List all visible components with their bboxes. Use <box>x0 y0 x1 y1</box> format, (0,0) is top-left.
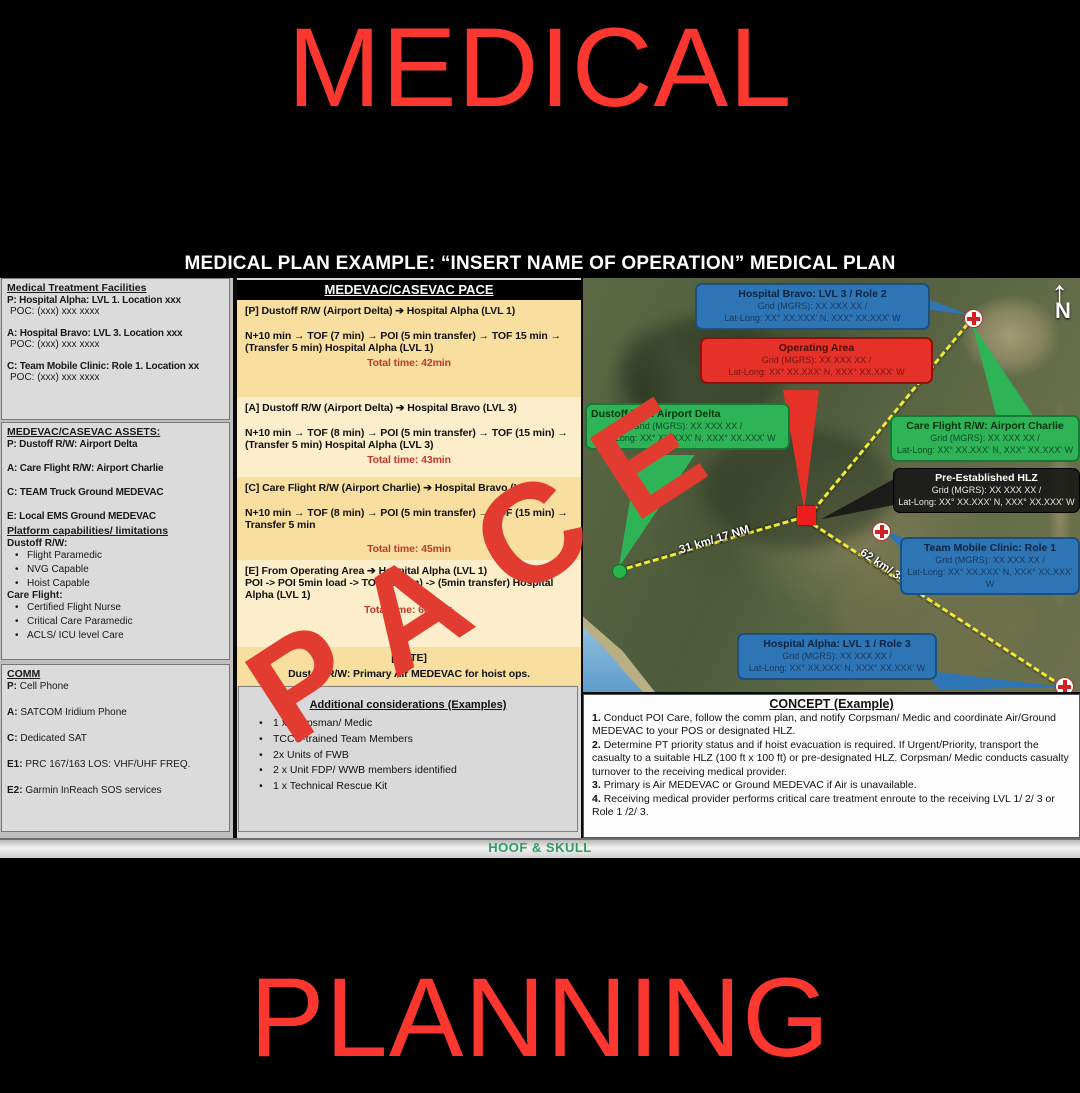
additional-item: 1 x Technical Rescue Kit <box>273 779 569 795</box>
hospital-alpha-callout: Hospital Alpha: LVL 1 / Role 3 Grid (MGR… <box>737 633 937 680</box>
note-text: Dustoff R/W: Primary Air MEDEVAC for hoi… <box>245 668 573 680</box>
total-time: Total time: 43min <box>245 454 573 466</box>
left-panel: Medical Treatment Facilities P: Hospital… <box>0 278 233 838</box>
additional-item: 1 x Corpsman/ Medic <box>273 716 569 732</box>
total-time: Total time: 45min <box>245 543 573 555</box>
additional-item: TCCC-trained Team Members <box>273 732 569 748</box>
comm-item: C: Dedicated SAT <box>7 733 224 744</box>
hospital-bravo-cross-icon <box>964 309 983 328</box>
pace-note: [NOTE] Dustoff R/W: Primary Air MEDEVAC … <box>237 647 581 685</box>
slide-canvas: MEDICAL MEDICAL PLAN EXAMPLE: “INSERT NA… <box>0 0 1080 1093</box>
team-mobile-clinic-callout: Team Mobile Clinic: Role 1 Grid (MGRS): … <box>900 537 1080 595</box>
comm-item: E1: PRC 167/163 LOS: VHF/UHF FREQ. <box>7 759 224 770</box>
platform-item: Certified Flight Nurse <box>27 601 224 615</box>
operating-area-marker <box>797 506 816 525</box>
asset-item: P: Dustoff R/W: Airport Delta <box>7 439 224 450</box>
platform-heading: Platform capabilities/ limitations <box>7 525 224 537</box>
platform-item: Critical Care Paramedic <box>27 615 224 629</box>
platform-bullets: Flight Paramedic NVG Capable Hoist Capab… <box>7 549 224 590</box>
operating-area-callout: Operating Area Grid (MGRS): XX XXX XX / … <box>700 337 933 384</box>
pace-panel: MEDEVAC/CASEVAC PACE [P] Dustoff R/W (Ai… <box>237 278 581 838</box>
concept-item: 1. Conduct POI Care, follow the comm pla… <box>592 712 1071 739</box>
mtf-entry: P: Hospital Alpha: LVL 1. Location xxx P… <box>7 295 224 317</box>
platform-item: NVG Capable <box>27 563 224 577</box>
comm-section: COMM P: Cell Phone A: SATCOM Iridium Pho… <box>1 664 230 832</box>
slide-body: Medical Treatment Facilities P: Hospital… <box>0 278 1080 838</box>
total-time: Total time: 42min <box>245 357 573 369</box>
asset-item: C: TEAM Truck Ground MEDEVAC <box>7 487 224 498</box>
pace-header: MEDEVAC/CASEVAC PACE <box>237 280 581 300</box>
distance-label-1: 31 km/ 17 NM <box>678 524 751 557</box>
platform-item: Flight Paramedic <box>27 549 224 563</box>
platform-group-title: Dustoff R/W: <box>7 538 224 549</box>
top-title: MEDICAL <box>0 12 1080 124</box>
bottom-title: PLANNING <box>0 962 1080 1074</box>
slide-title: MEDICAL PLAN EXAMPLE: “INSERT NAME OF OP… <box>0 249 1080 278</box>
assets-heading: MEDEVAC/CASEVAC ASSETS: <box>7 426 224 438</box>
concept-item: 4. Receiving medical provider performs c… <box>592 793 1071 820</box>
platform-item: Hoist Capable <box>27 577 224 591</box>
comm-item: P: Cell Phone <box>7 681 224 692</box>
additional-list: 1 x Corpsman/ Medic TCCC-trained Team Me… <box>247 716 569 795</box>
footer-brand: HOOF & SKULL <box>488 840 592 855</box>
medevac-assets-section: MEDEVAC/CASEVAC ASSETS: P: Dustoff R/W: … <box>1 422 230 660</box>
comm-item: A: SATCOM Iridium Phone <box>7 707 224 718</box>
airport-delta-marker <box>612 564 627 579</box>
team-clinic-cross-icon <box>872 522 891 541</box>
slide-footer: HOOF & SKULL <box>0 838 1080 858</box>
mtf-entry: A: Hospital Bravo: LVL 3. Location xxx P… <box>7 328 224 350</box>
concept-item: 2. Determine PT priority status and if h… <box>592 739 1071 779</box>
pace-blocks: [P] Dustoff R/W (Airport Delta) ➔ Hospit… <box>237 300 581 685</box>
comm-item: E2: Garmin InReach SOS services <box>7 785 224 796</box>
total-time: Total time: 60min+ <box>245 604 573 616</box>
additional-considerations: Additional considerations (Examples) 1 x… <box>238 686 578 832</box>
platform-bullets: Certified Flight Nurse Critical Care Par… <box>7 601 224 642</box>
satellite-map: 31 km/ 17 NM 62 km/ 34 NM Hospital Bravo… <box>583 278 1080 692</box>
hospital-bravo-callout: Hospital Bravo: LVL 3 / Role 2 Grid (MGR… <box>695 283 930 330</box>
mtf-entry: C: Team Mobile Clinic: Role 1. Location … <box>7 361 224 383</box>
pace-block-emergency: [E] From Operating Area ➔ Hospital Alpha… <box>237 560 581 647</box>
pace-block-contingency: [C] Care Flight R/W (Airport Charlie) ➔ … <box>237 477 581 560</box>
north-arrow-icon: ↑ N <box>1041 280 1077 324</box>
comm-heading: COMM <box>7 668 224 680</box>
platform-item: ACLS/ ICU level Care <box>27 629 224 643</box>
hospital-alpha-cross-icon <box>1055 677 1074 692</box>
concept-item: 3. Primary is Air MEDEVAC or Ground MEDE… <box>592 779 1071 792</box>
care-flight-callout: Care Flight R/W: Airport Charlie Grid (M… <box>890 415 1080 462</box>
note-label: [NOTE] <box>245 652 573 664</box>
pace-block-alternate: [A] Dustoff R/W (Airport Delta) ➔ Hospit… <box>237 397 581 477</box>
concept-heading: CONCEPT (Example) <box>592 697 1071 711</box>
dustoff-callout: Dustoff R/W: Airport Delta Grid (MGRS): … <box>585 403 790 450</box>
mtf-heading: Medical Treatment Facilities <box>7 282 224 294</box>
platform-group-title: Care Flight: <box>7 590 224 601</box>
care-flight-pointer <box>966 324 1034 417</box>
pace-block-primary: [P] Dustoff R/W (Airport Delta) ➔ Hospit… <box>237 300 581 397</box>
concept-box: CONCEPT (Example) 1. Conduct POI Care, f… <box>583 694 1080 838</box>
asset-item: A: Care Flight R/W: Airport Charlie <box>7 463 224 474</box>
medical-treatment-facilities-section: Medical Treatment Facilities P: Hospital… <box>1 278 230 420</box>
additional-item: 2 x Unit FDP/ WWB members identified <box>273 763 569 779</box>
asset-item: E: Local EMS Ground MEDEVAC <box>7 511 224 522</box>
pre-established-hlz-callout: Pre-Established HLZ Grid (MGRS): XX XXX … <box>893 468 1080 513</box>
additional-item: 2x Units of FWB <box>273 748 569 764</box>
